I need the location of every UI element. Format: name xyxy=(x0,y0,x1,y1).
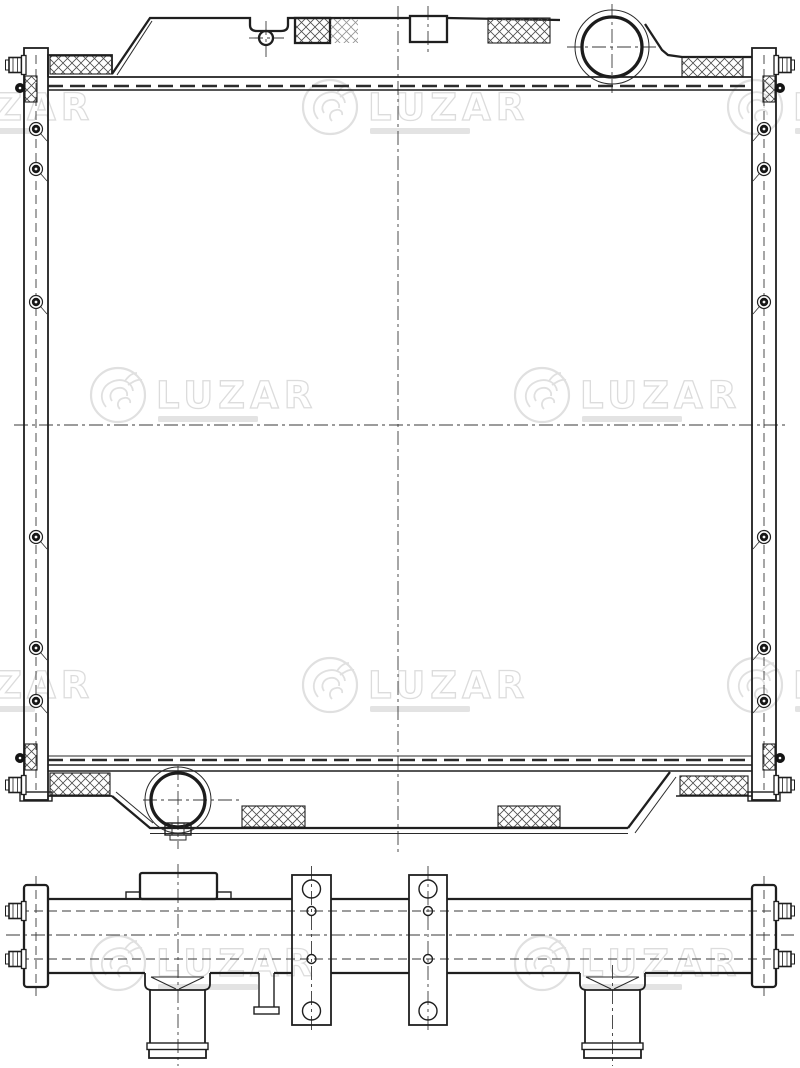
side-bolt xyxy=(774,56,795,75)
page-background xyxy=(0,0,800,1068)
top-left-mounting-pad xyxy=(50,56,112,74)
cap-bolt xyxy=(6,950,27,969)
top-pad-2 xyxy=(330,18,358,43)
cap-bolt xyxy=(774,902,795,921)
top-right-mounting-pad xyxy=(682,57,743,77)
top-pad-3 xyxy=(488,18,550,43)
radiator-engineering-drawing: LUZAR xyxy=(0,0,800,1068)
bottom-right-mounting-pad xyxy=(680,776,748,795)
side-bolt xyxy=(6,776,27,795)
side-bolt xyxy=(6,56,27,75)
side-bolt xyxy=(774,776,795,795)
bottom-pad-1 xyxy=(242,806,305,827)
bottom-pad-2 xyxy=(498,806,560,827)
cap-bolt xyxy=(6,902,27,921)
bottom-left-mounting-pad xyxy=(50,773,110,795)
top-pad-1 xyxy=(295,18,330,43)
drawing-page: LUZAR xyxy=(0,0,800,1068)
cap-bolt xyxy=(774,950,795,969)
